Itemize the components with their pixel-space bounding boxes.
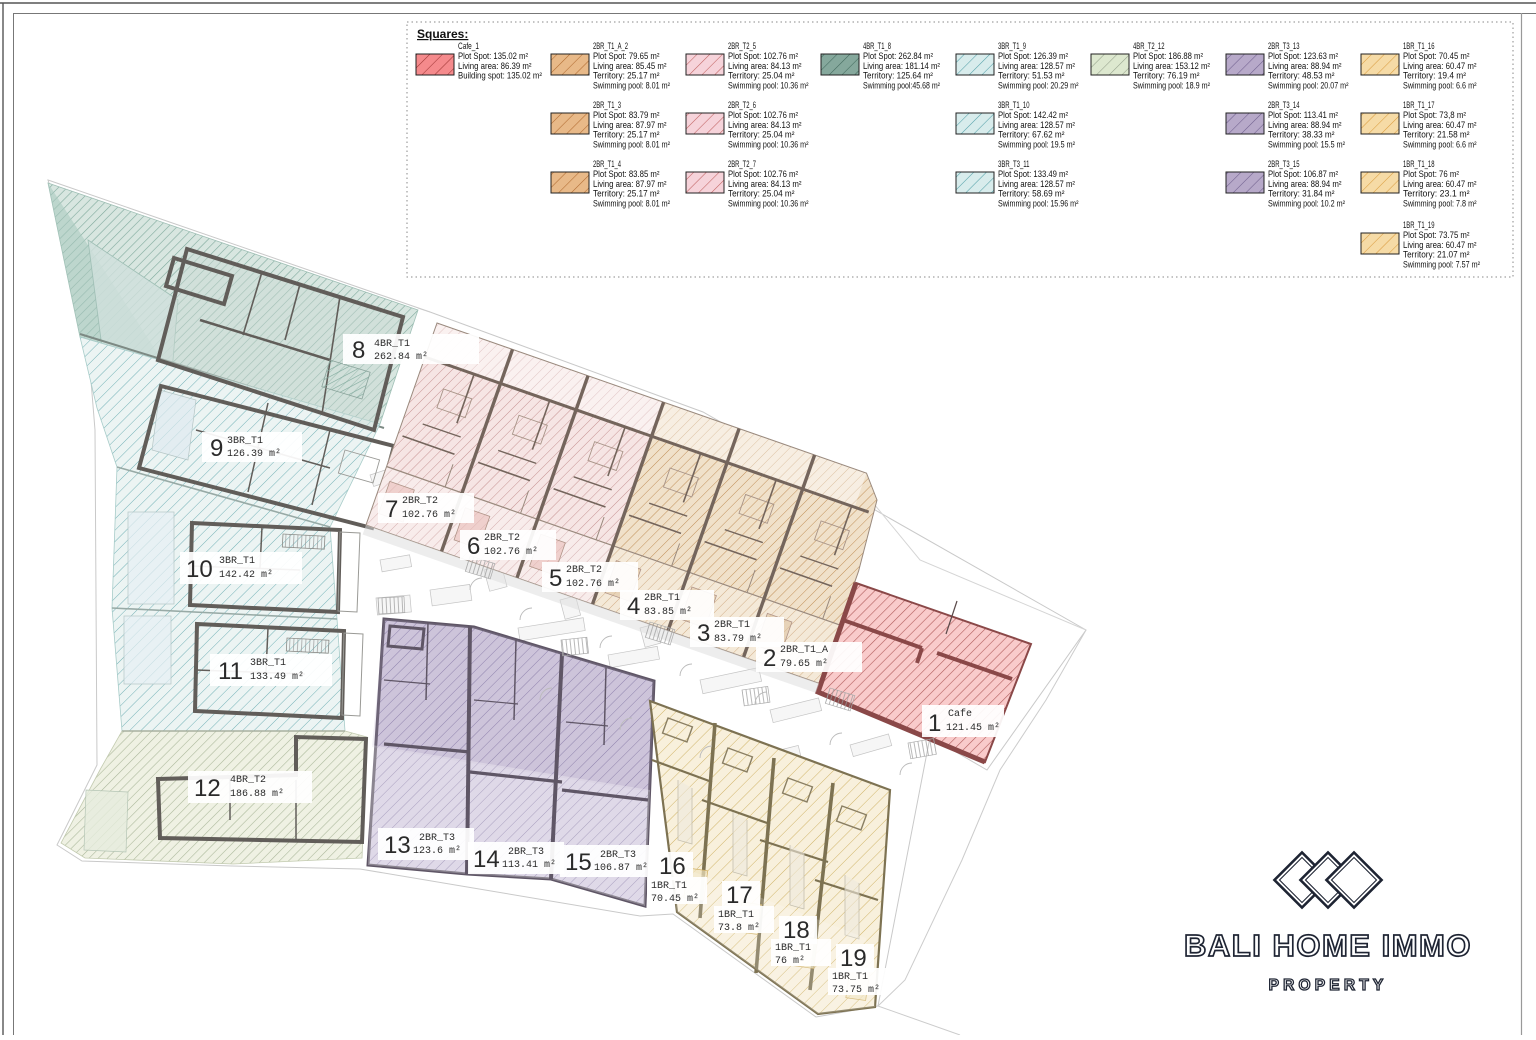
svg-text:79.65 m²: 79.65 m² xyxy=(780,659,828,670)
svg-text:Plot Spot: 73.75 m²: Plot Spot: 73.75 m² xyxy=(1403,230,1470,240)
svg-text:121.45 m²: 121.45 m² xyxy=(946,723,1000,734)
svg-text:4BR_T2_12: 4BR_T2_12 xyxy=(1133,41,1165,51)
svg-text:Plot Spot: 83.85 m²: Plot Spot: 83.85 m² xyxy=(593,169,660,179)
svg-text:Living area: 87.97 m²: Living area: 87.97 m² xyxy=(593,179,667,189)
svg-text:4BR_T2: 4BR_T2 xyxy=(230,775,266,786)
svg-text:3BR_T1: 3BR_T1 xyxy=(219,556,255,567)
svg-text:Territory: 125.64 m²: Territory: 125.64 m² xyxy=(863,71,933,81)
svg-text:3BR_T1_10: 3BR_T1_10 xyxy=(998,100,1030,110)
svg-text:Swimming pool: 18.9 m²: Swimming pool: 18.9 m² xyxy=(1133,80,1210,90)
svg-text:Plot Spot: 113.41 m²: Plot Spot: 113.41 m² xyxy=(1268,110,1338,120)
svg-text:Building spot: 135.02 m²: Building spot: 135.02 m² xyxy=(458,71,542,81)
svg-text:3BR_T3_11: 3BR_T3_11 xyxy=(998,159,1030,169)
svg-text:1BR_T1: 1BR_T1 xyxy=(718,910,754,921)
svg-text:Living area: 153.12 m²: Living area: 153.12 m² xyxy=(1133,61,1210,71)
svg-text:76 m²: 76 m² xyxy=(775,956,805,967)
svg-text:2BR_T2: 2BR_T2 xyxy=(484,533,520,544)
svg-text:Territory: 76.19 m²: Territory: 76.19 m² xyxy=(1133,71,1200,81)
svg-text:16: 16 xyxy=(659,853,686,880)
svg-text:Cafe: Cafe xyxy=(948,708,972,720)
svg-text:Territory: 31.84 m²: Territory: 31.84 m² xyxy=(1268,189,1335,199)
svg-text:Plot Spot: 76 m²: Plot Spot: 76 m² xyxy=(1403,169,1459,179)
svg-text:1BR_T1_17: 1BR_T1_17 xyxy=(1403,100,1435,110)
svg-text:3BR_T1_9: 3BR_T1_9 xyxy=(998,41,1026,51)
svg-text:Swimming pool: 10.36 m²: Swimming pool: 10.36 m² xyxy=(728,80,809,90)
svg-text:262.84 m²: 262.84 m² xyxy=(374,352,428,363)
svg-text:Living area: 128.57 m²: Living area: 128.57 m² xyxy=(998,179,1075,189)
svg-text:Territory: 25.17 m²: Territory: 25.17 m² xyxy=(593,189,660,199)
svg-text:12: 12 xyxy=(194,775,221,802)
svg-text:Swimming pool: 15.5 m²: Swimming pool: 15.5 m² xyxy=(1268,139,1345,149)
svg-text:2BR_T2: 2BR_T2 xyxy=(566,565,602,576)
svg-text:Plot Spot: 102.76 m²: Plot Spot: 102.76 m² xyxy=(728,169,798,179)
svg-text:Living area: 60.47 m²: Living area: 60.47 m² xyxy=(1403,120,1477,130)
svg-text:Living area: 60.47 m²: Living area: 60.47 m² xyxy=(1403,179,1477,189)
svg-text:9: 9 xyxy=(210,435,223,462)
svg-text:2BR_T1_3: 2BR_T1_3 xyxy=(593,100,621,110)
svg-text:142.42 m²: 142.42 m² xyxy=(219,570,273,581)
svg-text:Living area: 60.47 m²: Living area: 60.47 m² xyxy=(1403,240,1477,250)
svg-text:Plot Spot: 135.02 m²: Plot Spot: 135.02 m² xyxy=(458,51,528,61)
svg-text:2BR_T1_4: 2BR_T1_4 xyxy=(593,159,621,169)
svg-text:Swimming pool: 7.8 m²: Swimming pool: 7.8 m² xyxy=(1403,198,1477,208)
svg-text:83.85 m²: 83.85 m² xyxy=(644,607,692,618)
svg-text:2BR_T3: 2BR_T3 xyxy=(600,850,636,861)
svg-text:1BR_T1: 1BR_T1 xyxy=(651,881,687,892)
svg-text:Living area: 84.13 m²: Living area: 84.13 m² xyxy=(728,120,802,130)
svg-text:83.79 m²: 83.79 m² xyxy=(714,634,762,645)
svg-text:Swimming pool: 19.5 m²: Swimming pool: 19.5 m² xyxy=(998,139,1075,149)
svg-text:Plot Spot: 123.63 m²: Plot Spot: 123.63 m² xyxy=(1268,51,1338,61)
svg-text:2BR_T2_6: 2BR_T2_6 xyxy=(728,100,756,110)
svg-text:123.6 m²: 123.6 m² xyxy=(413,846,461,857)
svg-text:Territory: 25.17 m²: Territory: 25.17 m² xyxy=(593,130,660,140)
svg-text:Swimming pool: 10.36 m²: Swimming pool: 10.36 m² xyxy=(728,198,809,208)
svg-text:Plot Spot: 79.65 m²: Plot Spot: 79.65 m² xyxy=(593,51,660,61)
svg-text:Swimming pool: 8.01 m²: Swimming pool: 8.01 m² xyxy=(593,139,670,149)
svg-text:Living area: 88.94 m²: Living area: 88.94 m² xyxy=(1268,120,1342,130)
svg-text:3: 3 xyxy=(697,620,710,647)
svg-text:Living area: 87.97 m²: Living area: 87.97 m² xyxy=(593,120,667,130)
svg-text:1BR_T1: 1BR_T1 xyxy=(775,943,811,954)
svg-text:1: 1 xyxy=(928,710,941,737)
svg-text:70.45 m²: 70.45 m² xyxy=(651,894,699,905)
svg-text:2: 2 xyxy=(763,645,776,672)
svg-text:Living area: 88.94 m²: Living area: 88.94 m² xyxy=(1268,179,1342,189)
svg-text:8: 8 xyxy=(352,337,365,364)
svg-text:73.8 m²: 73.8 m² xyxy=(718,923,760,934)
svg-text:Plot Spot: 106.87 m²: Plot Spot: 106.87 m² xyxy=(1268,169,1338,179)
svg-text:Plot Spot: 126.39 m²: Plot Spot: 126.39 m² xyxy=(998,51,1068,61)
svg-text:102.76 m²: 102.76 m² xyxy=(402,510,456,521)
svg-text:Territory: 21.58 m²: Territory: 21.58 m² xyxy=(1403,130,1470,140)
svg-text:Territory: 48.53 m²: Territory: 48.53 m² xyxy=(1268,71,1335,81)
svg-text:19: 19 xyxy=(840,945,867,972)
svg-text:Squares:: Squares: xyxy=(417,27,468,41)
svg-text:Living area: 84.13 m²: Living area: 84.13 m² xyxy=(728,61,802,71)
svg-text:1BR_T1_16: 1BR_T1_16 xyxy=(1403,41,1435,51)
svg-text:102.76 m²: 102.76 m² xyxy=(484,547,538,558)
svg-text:Territory: 25.04 m²: Territory: 25.04 m² xyxy=(728,130,795,140)
svg-text:Swimming pool: 20.07 m²: Swimming pool: 20.07 m² xyxy=(1268,80,1349,90)
svg-text:126.39 m²: 126.39 m² xyxy=(227,449,281,460)
svg-text:1BR_T1_19: 1BR_T1_19 xyxy=(1403,220,1435,230)
svg-text:18: 18 xyxy=(783,917,810,944)
svg-text:4BR_T1: 4BR_T1 xyxy=(374,339,410,350)
svg-text:73.75 m²: 73.75 m² xyxy=(832,985,880,996)
svg-text:4: 4 xyxy=(627,593,640,620)
svg-text:1BR_T1_18: 1BR_T1_18 xyxy=(1403,159,1435,169)
svg-text:2BR_T1_A: 2BR_T1_A xyxy=(780,645,828,656)
svg-text:3BR_T1: 3BR_T1 xyxy=(250,658,286,669)
svg-text:Territory: 21.07 m²: Territory: 21.07 m² xyxy=(1403,250,1470,260)
svg-text:Plot Spot: 70.45 m²: Plot Spot: 70.45 m² xyxy=(1403,51,1470,61)
svg-text:1BR_T1: 1BR_T1 xyxy=(832,972,868,983)
svg-text:Plot Spot: 133.49 m²: Plot Spot: 133.49 m² xyxy=(998,169,1068,179)
svg-text:Plot Spot: 83.79 m²: Plot Spot: 83.79 m² xyxy=(593,110,660,120)
svg-text:Territory: 67.62 m²: Territory: 67.62 m² xyxy=(998,130,1065,140)
svg-text:11: 11 xyxy=(218,658,243,685)
svg-text:7: 7 xyxy=(385,496,398,523)
svg-text:Living area: 60.47 m²: Living area: 60.47 m² xyxy=(1403,61,1477,71)
svg-text:15: 15 xyxy=(565,849,592,876)
svg-text:BALI HOME IMMO: BALI HOME IMMO xyxy=(1184,928,1472,963)
svg-text:4BR_T1_8: 4BR_T1_8 xyxy=(863,41,891,51)
svg-text:2BR_T3_14: 2BR_T3_14 xyxy=(1268,100,1300,110)
svg-text:2BR_T2: 2BR_T2 xyxy=(402,496,438,507)
svg-text:10: 10 xyxy=(186,556,213,583)
svg-text:Swimming pool: 8.01 m²: Swimming pool: 8.01 m² xyxy=(593,198,670,208)
svg-text:13: 13 xyxy=(384,832,411,859)
svg-text:Swimming pool:45.68 m²: Swimming pool:45.68 m² xyxy=(863,80,940,90)
svg-text:2BR_T3_13: 2BR_T3_13 xyxy=(1268,41,1300,51)
svg-text:Living area: 84.13 m²: Living area: 84.13 m² xyxy=(728,179,802,189)
svg-text:Territory: 38.33 m²: Territory: 38.33 m² xyxy=(1268,130,1335,140)
svg-text:Plot Spot: 102.76 m²: Plot Spot: 102.76 m² xyxy=(728,110,798,120)
svg-text:Swimming pool: 7.57 m²: Swimming pool: 7.57 m² xyxy=(1403,259,1480,269)
svg-text:2BR_T3: 2BR_T3 xyxy=(508,847,544,858)
svg-text:Plot Spot: 262.84 m²: Plot Spot: 262.84 m² xyxy=(863,51,933,61)
svg-text:Cafe_1: Cafe_1 xyxy=(458,41,479,51)
svg-text:Plot Spot: 142.42 m²: Plot Spot: 142.42 m² xyxy=(998,110,1068,120)
svg-text:14: 14 xyxy=(473,846,500,873)
svg-text:Territory: 23.1 m²: Territory: 23.1 m² xyxy=(1403,189,1470,199)
svg-text:Living area: 88.94 m²: Living area: 88.94 m² xyxy=(1268,61,1342,71)
svg-text:Plot Spot: 186.88 m²: Plot Spot: 186.88 m² xyxy=(1133,51,1203,61)
svg-text:Living area: 181.14 m²: Living area: 181.14 m² xyxy=(863,61,940,71)
svg-text:Territory: 25.04 m²: Territory: 25.04 m² xyxy=(728,71,795,81)
svg-text:6: 6 xyxy=(467,533,480,560)
svg-text:113.41 m²: 113.41 m² xyxy=(502,860,556,871)
svg-text:102.76 m²: 102.76 m² xyxy=(566,579,620,590)
svg-text:3BR_T1: 3BR_T1 xyxy=(227,436,263,447)
svg-text:2BR_T1_A_2: 2BR_T1_A_2 xyxy=(593,41,628,51)
svg-text:Living area: 128.57 m²: Living area: 128.57 m² xyxy=(998,120,1075,130)
svg-text:Swimming pool: 20.29 m²: Swimming pool: 20.29 m² xyxy=(998,80,1079,90)
svg-text:PROPERTY: PROPERTY xyxy=(1269,977,1388,994)
svg-text:2BR_T1: 2BR_T1 xyxy=(714,620,750,631)
svg-text:2BR_T3_15: 2BR_T3_15 xyxy=(1268,159,1300,169)
svg-text:133.49 m²: 133.49 m² xyxy=(250,672,304,683)
svg-text:2BR_T1: 2BR_T1 xyxy=(644,593,680,604)
svg-text:186.88 m²: 186.88 m² xyxy=(230,789,284,800)
svg-text:2BR_T2_5: 2BR_T2_5 xyxy=(728,41,756,51)
svg-text:Living area: 85.45 m²: Living area: 85.45 m² xyxy=(593,61,667,71)
svg-text:Territory: 19.4 m²: Territory: 19.4 m² xyxy=(1403,71,1466,81)
svg-text:Swimming pool: 10.2 m²: Swimming pool: 10.2 m² xyxy=(1268,198,1345,208)
svg-text:106.87 m²: 106.87 m² xyxy=(594,863,648,874)
svg-text:2BR_T2_7: 2BR_T2_7 xyxy=(728,159,756,169)
svg-text:Plot Spot: 102.76 m²: Plot Spot: 102.76 m² xyxy=(728,51,798,61)
svg-text:Swimming pool: 6.6 m²: Swimming pool: 6.6 m² xyxy=(1403,80,1477,90)
svg-text:Territory: 51.53 m²: Territory: 51.53 m² xyxy=(998,71,1065,81)
svg-text:Swimming pool: 8.01 m²: Swimming pool: 8.01 m² xyxy=(593,80,670,90)
svg-text:Swimming pool: 6.6 m²: Swimming pool: 6.6 m² xyxy=(1403,139,1477,149)
svg-text:Plot Spot: 73,8 m²: Plot Spot: 73,8 m² xyxy=(1403,110,1466,120)
svg-text:Swimming pool: 15.96 m²: Swimming pool: 15.96 m² xyxy=(998,198,1079,208)
svg-text:Territory: 25.17 m²: Territory: 25.17 m² xyxy=(593,71,660,81)
svg-text:Living area: 128.57 m²: Living area: 128.57 m² xyxy=(998,61,1075,71)
svg-text:Swimming pool: 10.36 m²: Swimming pool: 10.36 m² xyxy=(728,139,809,149)
svg-text:Living area: 86.39 m²: Living area: 86.39 m² xyxy=(458,61,532,71)
svg-text:Territory: 25.04 m²: Territory: 25.04 m² xyxy=(728,189,795,199)
svg-text:5: 5 xyxy=(549,565,562,592)
svg-text:17: 17 xyxy=(726,882,753,909)
svg-text:2BR_T3: 2BR_T3 xyxy=(419,833,455,844)
svg-text:Territory: 58.69 m²: Territory: 58.69 m² xyxy=(998,189,1065,199)
